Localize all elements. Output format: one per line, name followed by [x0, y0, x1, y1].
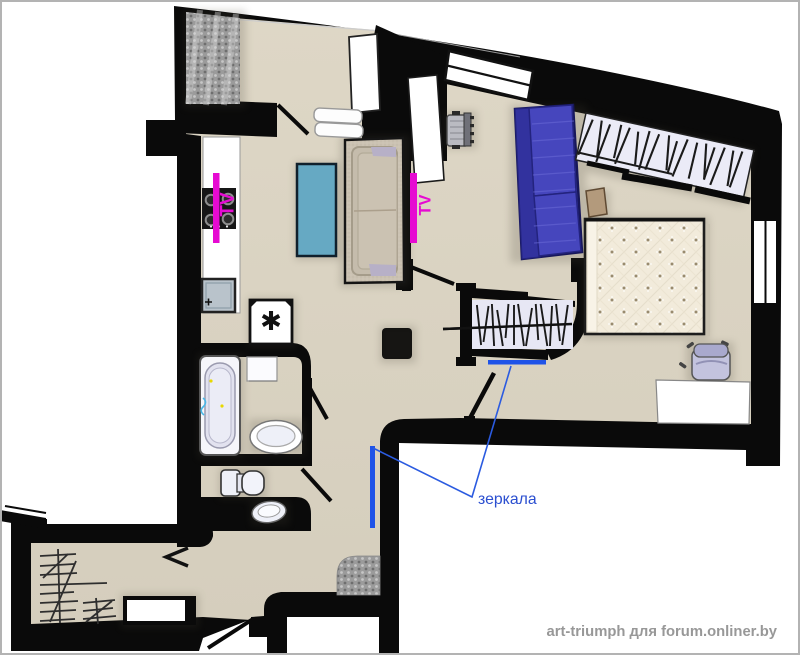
svg-text:зеркала: зеркала [478, 491, 537, 508]
svg-text:TV: TV [417, 194, 435, 215]
svg-text:✱: ✱ [260, 306, 282, 336]
svg-text:TV: TV [218, 192, 239, 217]
svg-text:art-triumph для forum.onliner.: art-triumph для forum.onliner.by [547, 624, 778, 640]
